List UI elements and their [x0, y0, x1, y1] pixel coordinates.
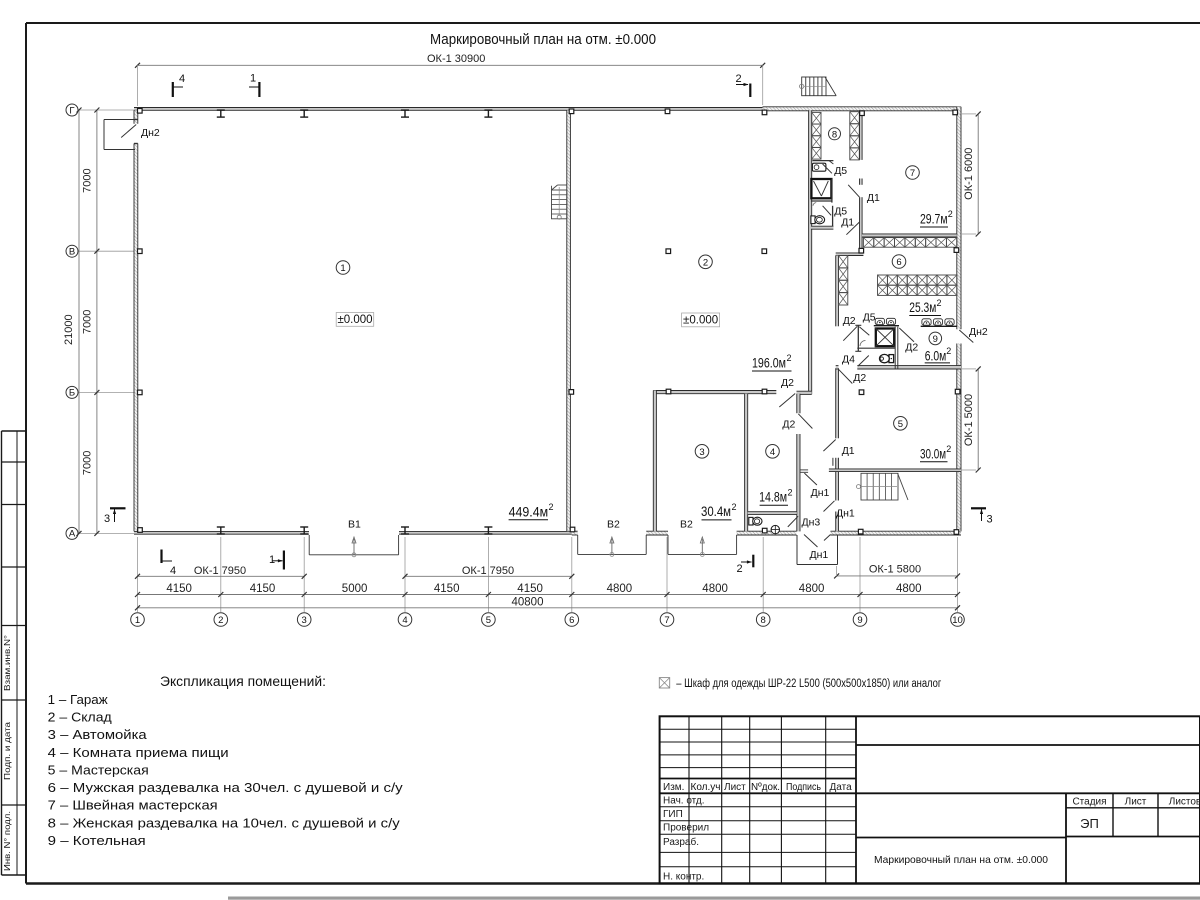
svg-text:Nºдок.: Nºдок. — [751, 782, 780, 793]
svg-text:ГИП: ГИП — [663, 809, 683, 820]
svg-text:3: 3 — [302, 615, 307, 626]
svg-text:6 – Мужская раздевалка на 30че: 6 – Мужская раздевалка на 30чел. с душев… — [48, 780, 404, 795]
svg-text:4800: 4800 — [799, 583, 825, 595]
svg-text:ОК-1 7950: ОК-1 7950 — [462, 565, 514, 577]
svg-text:2: 2 — [703, 257, 708, 268]
svg-text:Кол.уч: Кол.уч — [691, 782, 721, 793]
svg-text:2: 2 — [549, 502, 554, 512]
svg-text:9: 9 — [857, 615, 862, 626]
svg-text:3: 3 — [104, 513, 110, 525]
svg-text:9 – Котельная: 9 – Котельная — [48, 833, 146, 848]
svg-text:Нач. отд.: Нач. отд. — [663, 796, 705, 807]
svg-text:14.8м: 14.8м — [759, 489, 787, 505]
svg-text:4800: 4800 — [896, 583, 922, 595]
svg-text:7000: 7000 — [82, 168, 94, 192]
svg-text:4: 4 — [179, 73, 185, 85]
svg-text:Разраб.: Разраб. — [663, 836, 699, 848]
svg-text:30.0м: 30.0м — [920, 446, 946, 462]
svg-text:Дн1: Дн1 — [836, 508, 855, 520]
svg-text:Дн1: Дн1 — [810, 549, 829, 561]
svg-text:9: 9 — [933, 334, 938, 345]
svg-text:В1: В1 — [348, 519, 361, 531]
svg-text:449.4м: 449.4м — [509, 504, 548, 520]
svg-text:2: 2 — [732, 502, 737, 512]
svg-text:3 – Автомойка: 3 – Автомойка — [48, 727, 148, 742]
svg-text:4150: 4150 — [250, 583, 276, 595]
svg-text:Экспликация помещений:: Экспликация помещений: — [160, 674, 326, 689]
svg-text:196.0м: 196.0м — [752, 355, 786, 371]
svg-text:– Шкаф для одежды ШР-22 L500: – Шкаф для одежды ШР-22 L500 (500х500х18… — [676, 678, 941, 690]
svg-text:6: 6 — [896, 257, 901, 268]
svg-text:2: 2 — [787, 353, 792, 363]
svg-text:6: 6 — [569, 615, 574, 626]
svg-text:Д1: Д1 — [867, 192, 880, 204]
svg-text:Подпись: Подпись — [786, 782, 821, 793]
svg-text:2: 2 — [218, 615, 223, 626]
svg-text:ОК-1 5000: ОК-1 5000 — [963, 394, 975, 446]
svg-text:Б: Б — [69, 388, 75, 399]
svg-text:3: 3 — [987, 514, 993, 526]
svg-text:2: 2 — [736, 73, 742, 85]
svg-text:40800: 40800 — [512, 597, 544, 609]
svg-text:Инв. N° подл.: Инв. N° подл. — [2, 811, 12, 871]
svg-text:ОК-1 6000: ОК-1 6000 — [963, 148, 975, 200]
svg-text:Дн2: Дн2 — [141, 127, 160, 139]
svg-text:Д1: Д1 — [841, 217, 854, 229]
svg-text:Лист: Лист — [724, 782, 746, 793]
svg-text:30.4м: 30.4м — [701, 503, 731, 519]
svg-text:Лист: Лист — [1125, 797, 1147, 808]
svg-text:Дата: Дата — [830, 782, 853, 793]
svg-text:ОК-1 5800: ОК-1 5800 — [869, 564, 921, 576]
svg-text:В2: В2 — [680, 519, 693, 531]
svg-text:2 – Склад: 2 – Склад — [48, 710, 112, 725]
svg-text:2: 2 — [737, 563, 743, 575]
svg-text:4: 4 — [770, 447, 775, 458]
svg-text:Д2: Д2 — [853, 372, 866, 384]
svg-text:1: 1 — [340, 263, 345, 274]
svg-text:4 – Комната приема пищи: 4 – Комната приема пищи — [48, 745, 229, 760]
svg-text:Н. контр.: Н. контр. — [663, 872, 704, 883]
svg-text:1 – Гараж: 1 – Гараж — [48, 692, 108, 707]
svg-text:Д1: Д1 — [842, 445, 855, 457]
svg-text:2: 2 — [788, 487, 793, 497]
svg-text:5000: 5000 — [342, 583, 368, 595]
svg-text:8: 8 — [832, 129, 837, 140]
svg-text:10: 10 — [952, 615, 963, 626]
svg-text:Дн3: Дн3 — [802, 517, 821, 529]
svg-text:Взам.инв.N°: Взам.инв.N° — [2, 635, 12, 691]
svg-text:2: 2 — [946, 444, 951, 454]
svg-text:4800: 4800 — [702, 583, 728, 595]
svg-text:Дн1: Дн1 — [811, 487, 830, 499]
svg-text:ЭП: ЭП — [1080, 816, 1099, 831]
svg-text:Д5: Д5 — [834, 205, 847, 217]
svg-text:4150: 4150 — [517, 583, 543, 595]
svg-text:±0.000: ±0.000 — [337, 314, 372, 326]
svg-text:7000: 7000 — [82, 310, 94, 334]
svg-text:2: 2 — [937, 298, 942, 308]
svg-text:Подп. и дата: Подп. и дата — [2, 722, 12, 780]
svg-text:Изм.: Изм. — [663, 782, 684, 793]
svg-text:4: 4 — [402, 615, 407, 626]
svg-text:Листов: Листов — [1169, 797, 1200, 808]
svg-text:2: 2 — [948, 209, 953, 219]
svg-text:8: 8 — [761, 615, 766, 626]
svg-text:3: 3 — [699, 447, 704, 458]
svg-text:4800: 4800 — [607, 583, 633, 595]
svg-text:7 – Швейная мастерская: 7 – Швейная мастерская — [48, 798, 218, 813]
svg-text:А: А — [69, 529, 76, 540]
svg-text:Д2: Д2 — [905, 342, 918, 354]
svg-text:Маркировочный план на отм. ±0.: Маркировочный план на отм. ±0.000 — [874, 854, 1048, 866]
svg-text:7000: 7000 — [82, 451, 94, 475]
svg-text:Д2: Д2 — [781, 377, 794, 389]
svg-text:1: 1 — [135, 615, 140, 626]
svg-text:ОК-1 7950: ОК-1 7950 — [194, 565, 246, 577]
svg-text:Д5: Д5 — [863, 312, 876, 324]
svg-text:5 – Мастерская: 5 – Мастерская — [48, 763, 149, 778]
svg-text:В: В — [69, 247, 75, 258]
svg-text:ОК-1 30900: ОК-1 30900 — [427, 53, 485, 65]
svg-text:Проверил: Проверил — [663, 823, 709, 834]
svg-text:5: 5 — [486, 615, 491, 626]
svg-text:5: 5 — [898, 419, 903, 430]
svg-text:Д4: Д4 — [842, 354, 855, 366]
svg-text:Маркировочный план на отм. ±0.: Маркировочный план на отм. ±0.000 — [430, 32, 656, 48]
svg-text:8 – Женская раздевалка на 10че: 8 – Женская раздевалка на 10чел. с душев… — [48, 815, 401, 830]
svg-text:7: 7 — [910, 168, 915, 179]
svg-text:2: 2 — [946, 346, 951, 356]
svg-text:7: 7 — [664, 615, 669, 626]
svg-text:В2: В2 — [607, 519, 620, 531]
svg-text:4: 4 — [170, 565, 176, 577]
svg-text:Стадия: Стадия — [1072, 797, 1106, 808]
svg-text:1: 1 — [269, 554, 275, 566]
svg-text:1: 1 — [250, 73, 256, 85]
svg-text:Д5: Д5 — [834, 165, 847, 177]
svg-text:4150: 4150 — [434, 583, 460, 595]
svg-text:Д2: Д2 — [782, 419, 795, 431]
svg-text:4150: 4150 — [166, 583, 192, 595]
svg-text:21000: 21000 — [63, 314, 75, 345]
svg-text:25.3м: 25.3м — [909, 299, 936, 315]
svg-text:±0.000: ±0.000 — [683, 315, 718, 327]
svg-text:Д2: Д2 — [843, 315, 856, 327]
svg-text:Дн2: Дн2 — [969, 326, 988, 338]
svg-text:29.7м: 29.7м — [920, 211, 948, 227]
svg-text:6.0м: 6.0м — [925, 348, 947, 364]
svg-text:Г: Г — [69, 105, 74, 116]
